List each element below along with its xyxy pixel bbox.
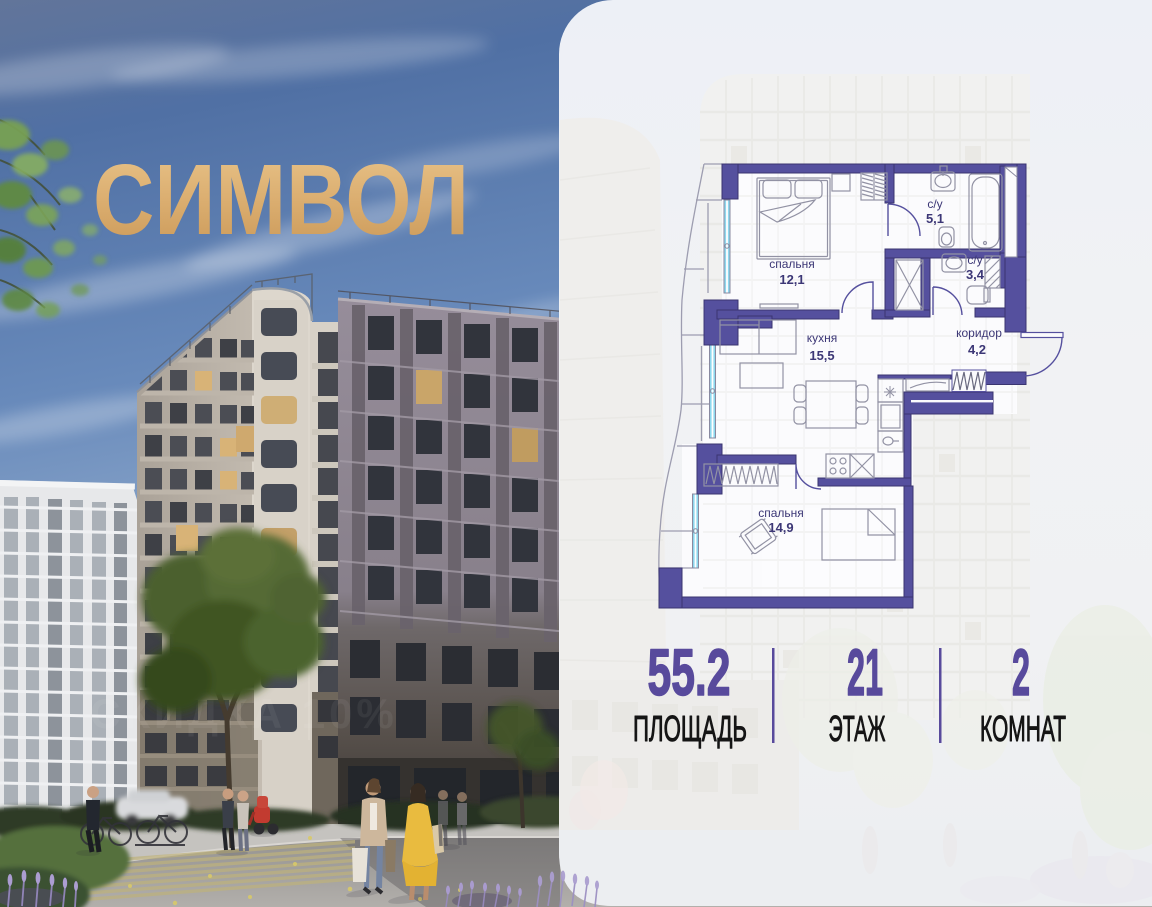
svg-text:спальня: спальня — [758, 506, 804, 520]
svg-text:ПЛОЩАДЬ: ПЛОЩАДЬ — [633, 708, 747, 749]
svg-text:ЭТАЖ: ЭТАЖ — [829, 708, 886, 749]
svg-text:55.2: 55.2 — [648, 635, 731, 709]
svg-text:15,5: 15,5 — [809, 348, 834, 363]
svg-text:с/у: с/у — [927, 197, 942, 211]
svg-text:кухня: кухня — [807, 331, 838, 345]
svg-text:2: 2 — [1012, 635, 1030, 709]
svg-text:спальня: спальня — [769, 257, 815, 271]
svg-text:21: 21 — [847, 635, 883, 709]
svg-text:КОМНАТ: КОМНАТ — [980, 708, 1066, 749]
svg-text:с/у: с/у — [967, 253, 982, 267]
svg-text:3,4: 3,4 — [966, 267, 985, 282]
svg-text:4,2: 4,2 — [968, 342, 986, 357]
svg-text:коридор: коридор — [956, 326, 1002, 340]
svg-text:12,1: 12,1 — [779, 272, 804, 287]
svg-text:14,9: 14,9 — [768, 520, 793, 535]
svg-text:5,1: 5,1 — [926, 211, 944, 226]
